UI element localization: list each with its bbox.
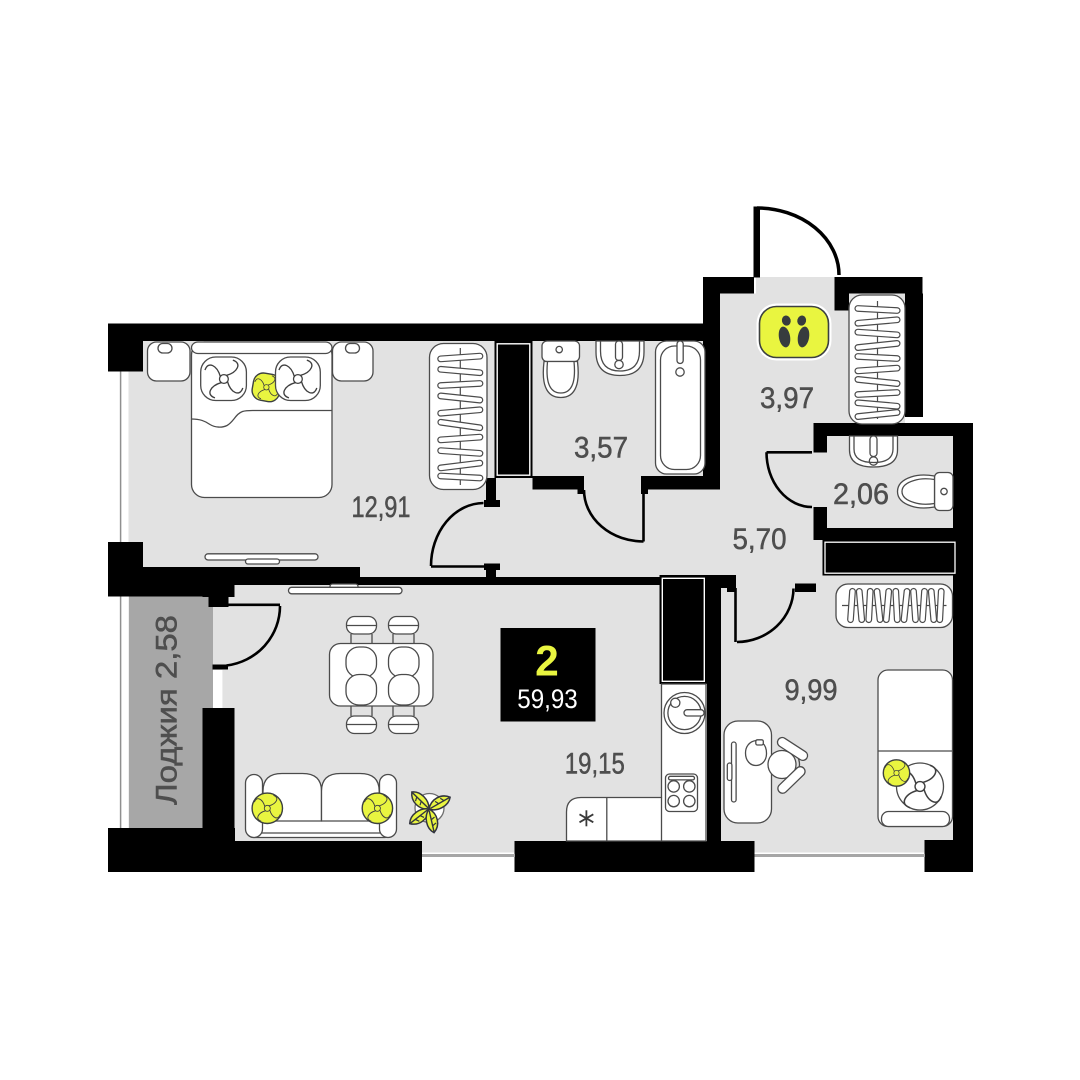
svg-text:2,06: 2,06	[833, 478, 889, 511]
svg-text:12,91: 12,91	[352, 491, 411, 524]
svg-text:Лоджия 2,58: Лоджия 2,58	[151, 615, 184, 805]
svg-text:59,93: 59,93	[517, 684, 578, 714]
svg-text:3,97: 3,97	[760, 382, 814, 415]
svg-text:3,57: 3,57	[574, 432, 628, 465]
svg-text:19,15: 19,15	[565, 748, 625, 781]
svg-text:2: 2	[535, 639, 559, 686]
svg-text:9,99: 9,99	[785, 674, 838, 707]
svg-text:5,70: 5,70	[733, 523, 787, 556]
